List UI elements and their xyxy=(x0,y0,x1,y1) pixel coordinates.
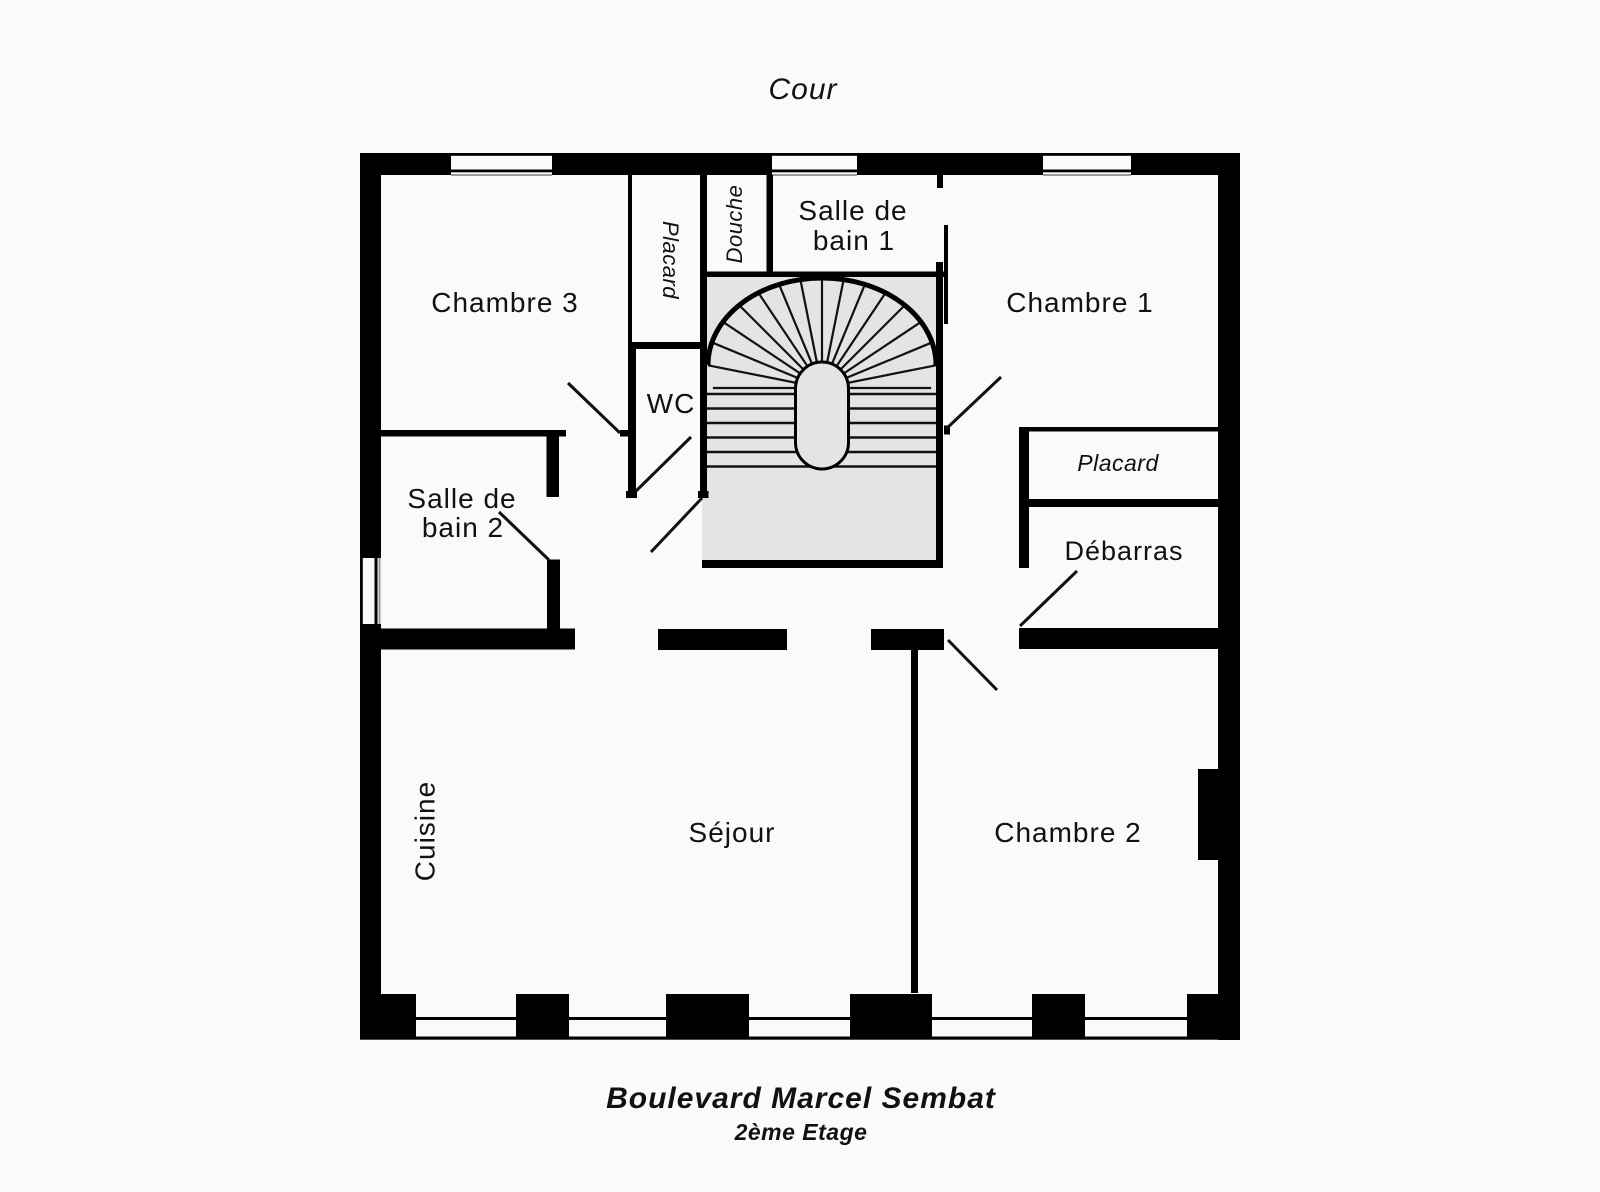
svg-text:Chambre 3: Chambre 3 xyxy=(431,287,579,318)
svg-text:bain 2: bain 2 xyxy=(422,512,504,543)
svg-text:bain 1: bain 1 xyxy=(813,225,895,256)
svg-text:Cour: Cour xyxy=(768,73,837,106)
svg-text:Douche: Douche xyxy=(722,185,747,264)
svg-text:Salle de: Salle de xyxy=(798,195,907,226)
svg-text:Placard: Placard xyxy=(658,221,683,299)
svg-text:Débarras: Débarras xyxy=(1064,536,1183,566)
svg-text:Cuisine: Cuisine xyxy=(409,781,440,881)
svg-text:WC: WC xyxy=(647,388,696,419)
svg-text:Boulevard Marcel Sembat: Boulevard Marcel Sembat xyxy=(606,1082,997,1115)
svg-text:2ème Etage: 2ème Etage xyxy=(734,1119,868,1145)
svg-text:Chambre 2: Chambre 2 xyxy=(994,817,1142,848)
svg-text:Placard: Placard xyxy=(1077,450,1159,476)
svg-text:Chambre 1: Chambre 1 xyxy=(1006,287,1154,318)
svg-text:Séjour: Séjour xyxy=(689,817,776,848)
svg-text:Salle de: Salle de xyxy=(407,483,516,514)
